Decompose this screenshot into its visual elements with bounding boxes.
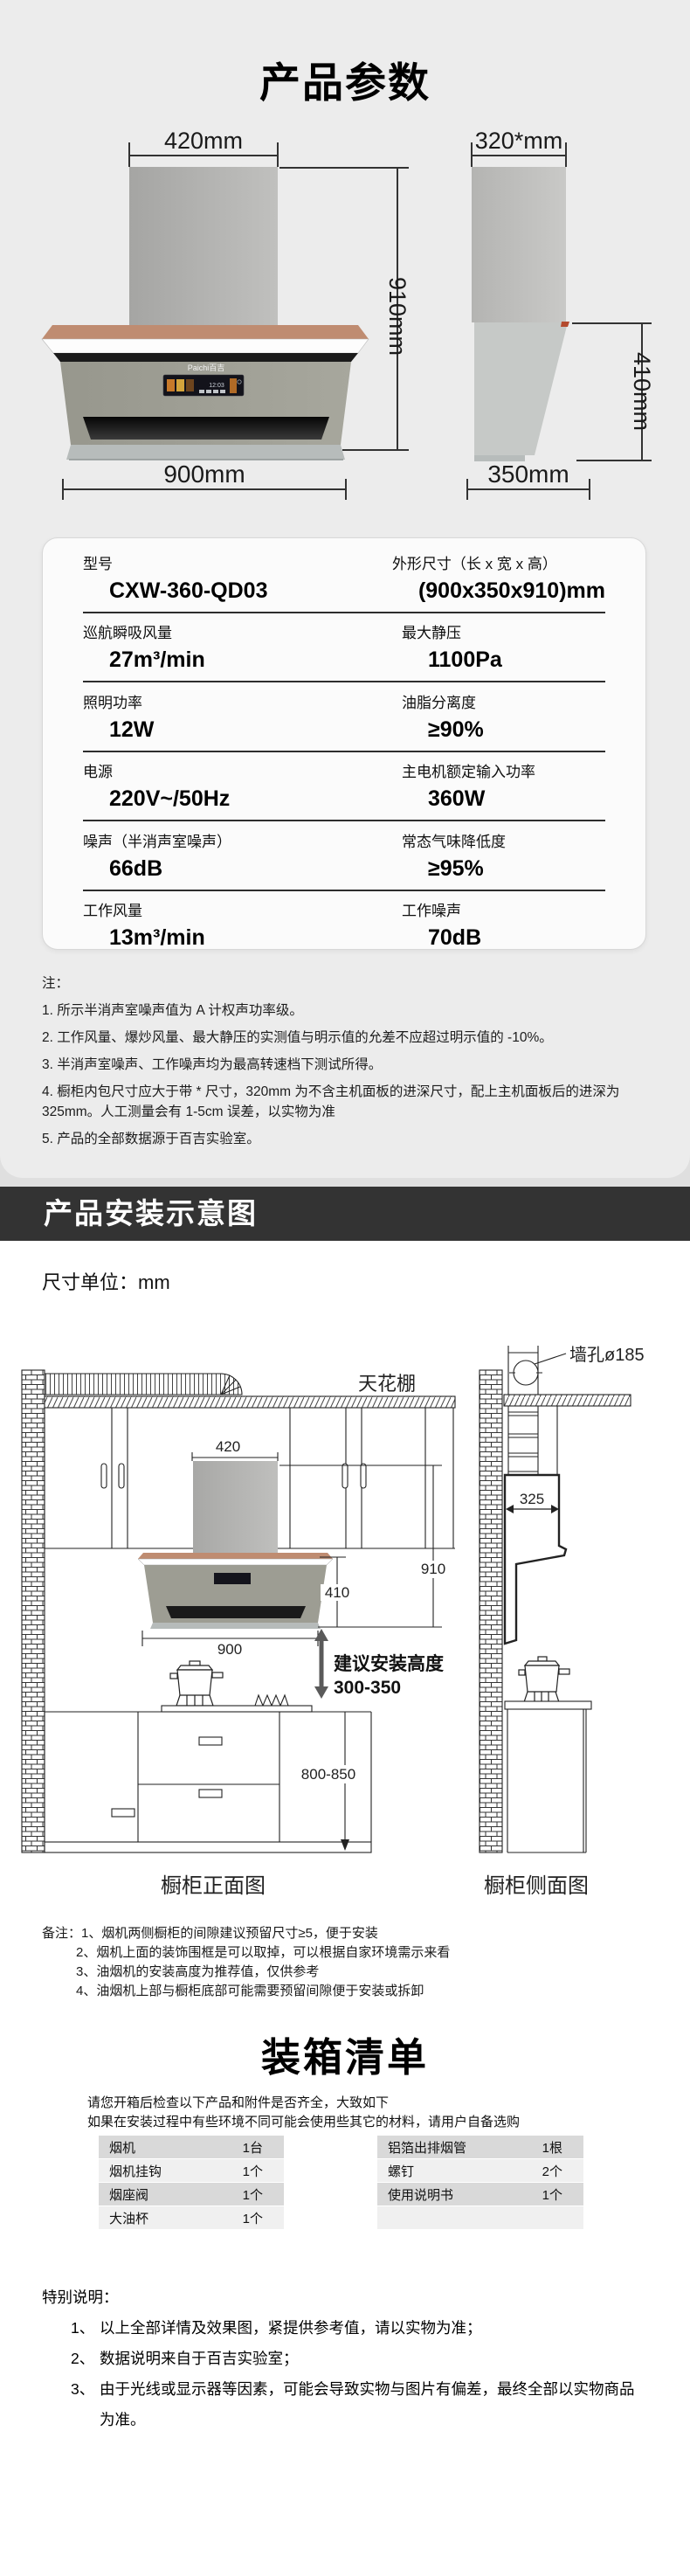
pot-front xyxy=(170,1661,223,1706)
cooktop-slab xyxy=(162,1706,312,1712)
spec-label: 常态气味降低度 xyxy=(402,829,605,851)
hood-intake-slot xyxy=(83,417,329,440)
unit-note: 尺寸单位：mm xyxy=(42,1267,170,1295)
spec-value: 12W xyxy=(83,717,402,743)
brick-wall-left xyxy=(22,1370,45,1852)
dim-front-top-width: 420mm xyxy=(164,128,243,154)
item-qty: 1根 xyxy=(542,2138,562,2157)
dim-800-arrow xyxy=(341,1839,349,1851)
packing-intro-line: 如果在安装过程中有些环境不同可能会使用些其它的材料，请用户自备选购 xyxy=(87,2113,520,2132)
suggest-arrow-down xyxy=(314,1686,328,1699)
spec-row: 噪声（半消声室噪声） 66dB 常态气味降低度 ≥95% xyxy=(83,821,605,891)
special-item-text: 由于光线或显示器等因素，可能会导致实物与图片有偏差，最终全部以实物商品为准。 xyxy=(100,2374,643,2435)
spec-label: 工作噪声 xyxy=(402,898,605,920)
hood-slot-small xyxy=(166,1606,306,1618)
spec-value: 220V~/50Hz xyxy=(83,786,402,812)
drawer-handles xyxy=(112,1737,222,1817)
special-item: 1、 以上全部详情及效果图，紧提供参考值，请以实物为准； xyxy=(42,2313,662,2344)
suggest-text-2: 300-350 xyxy=(334,1678,401,1698)
dim-410-label: 410 xyxy=(325,1584,349,1601)
item-name: 大油杯 xyxy=(109,2209,148,2227)
spec-value: 66dB xyxy=(83,856,402,882)
brick-wall-side xyxy=(480,1370,502,1852)
ceiling-band xyxy=(45,1396,455,1408)
display-food-tile xyxy=(167,379,175,391)
remark-line: 备注：1、烟机两侧橱柜的间隙建议预留尺寸≥5，便于安装 xyxy=(42,1927,653,1940)
page-title: 产品参数 xyxy=(0,49,690,109)
burner-grate-right xyxy=(255,1695,288,1706)
special-notes: 特别说明： 1、 以上全部详情及效果图，紧提供参考值，请以实物为准； 2、 数据… xyxy=(42,2282,662,2435)
spec-label: 电源 xyxy=(83,759,402,781)
packing-row: 烟机 1台 xyxy=(99,2136,284,2158)
side-chimney xyxy=(472,167,566,322)
spec-value: 27m³/min xyxy=(83,647,402,673)
dim-front-bottom-width: 900mm xyxy=(163,460,245,488)
special-item-num: 2、 xyxy=(71,2344,100,2374)
hood-led-strip xyxy=(42,339,369,353)
spec-value: 13m³/min xyxy=(83,925,402,951)
install-front-view: 420 910 410 900 建议安装高度 300-350 xyxy=(22,1370,455,1898)
wall-hole-label: 墙孔ø185 xyxy=(569,1345,645,1365)
product-dimensions-figure: 420mm 910mm Paichi百吉 12:03 900mm 320*mm xyxy=(0,122,690,537)
remark-line: 2、烟机上面的装饰围框是可以取掉，可以根据自家环境需示来看 xyxy=(42,1946,653,1959)
packing-table-left: 烟机 1台 烟机挂钩 1个 烟座阀 1个 大油杯 1个 xyxy=(99,2136,284,2230)
packing-row: 烟机挂钩 1个 xyxy=(99,2159,284,2182)
packing-row: 烟座阀 1个 xyxy=(99,2183,284,2206)
spec-value: ≥90% xyxy=(402,717,605,743)
ceiling-label: 天花棚 xyxy=(358,1373,416,1395)
spec-label: 照明功率 xyxy=(83,690,402,712)
top-duct xyxy=(45,1374,242,1395)
hood-base xyxy=(66,445,345,460)
item-qty: 2个 xyxy=(542,2162,562,2180)
spec-value: 1100Pa xyxy=(402,647,605,673)
display-time: 12:03 xyxy=(209,383,224,389)
spec-row: 电源 220V~/50Hz 主电机额定输入功率 360W xyxy=(83,752,605,822)
wall-hole xyxy=(514,1361,538,1385)
hood-lens-band xyxy=(53,353,358,362)
installation-diagram-main: 420 910 410 900 建议安装高度 300-350 xyxy=(0,1328,690,1909)
spec-value: 360W xyxy=(402,786,605,812)
dim-front-height: 910mm xyxy=(384,277,411,356)
note-item: 1. 所示半消声室噪声值为 A 计权声功率级。 xyxy=(42,1001,632,1021)
special-item: 3、 由于光线或显示器等因素，可能会导致实物与图片有偏差，最终全部以实物商品为准… xyxy=(42,2374,662,2435)
packing-list-title: 装箱清单 xyxy=(0,2025,690,2082)
special-item-text: 数据说明来自于百吉实验室； xyxy=(100,2344,643,2374)
item-qty: 1个 xyxy=(542,2185,562,2204)
remark-line: 4、油烟机上部与橱柜底部可能需要预留间隙便于安装或拆卸 xyxy=(42,1984,653,1998)
spec-row: 巡航瞬吸风量 27m³/min 最大静压 1100Pa xyxy=(83,613,605,683)
suggest-text-1: 建议安装高度 xyxy=(334,1653,444,1674)
side-view-caption: 橱柜侧面图 xyxy=(484,1874,589,1898)
remark-line: 3、油烟机的安装高度为推荐值，仅供参考 xyxy=(42,1965,653,1978)
wall-hole-leader xyxy=(535,1354,566,1364)
install-remarks: 备注：1、烟机两侧橱柜的间隙建议预留尺寸≥5，便于安装 2、烟机上面的装饰围框是… xyxy=(42,1927,653,2004)
install-side-view: 墙孔ø185 325 橱柜侧面图 xyxy=(480,1345,645,1898)
dim-side-depth: 350mm xyxy=(487,460,569,488)
spec-notes: 注： 1. 所示半消声室噪声值为 A 计权声功率级。 2. 工作风量、爆炒风量、… xyxy=(42,973,632,1156)
dim-420-label: 420 xyxy=(216,1438,240,1455)
dim-side-height: 410mm xyxy=(629,352,655,431)
hood-copper-small xyxy=(138,1553,333,1559)
display-food-tile xyxy=(186,379,194,391)
hood-base-small xyxy=(150,1623,321,1629)
item-name: 铝箔出排烟管 xyxy=(388,2138,466,2157)
note-item: 3. 半消声室噪声、工作噪声均为最高转速档下测试所得。 xyxy=(42,1055,632,1075)
dim-900-label: 900 xyxy=(217,1641,242,1658)
special-item-num: 1、 xyxy=(71,2313,100,2344)
special-item-text: 以上全部详情及效果图，紧提供参考值，请以实物为准； xyxy=(100,2313,643,2344)
item-name: 烟机 xyxy=(109,2138,135,2157)
spec-value: CXW-360-QD03 xyxy=(83,578,392,604)
spec-label: 外形尺寸（长 x 宽 x 高） xyxy=(392,551,605,573)
special-item-num: 3、 xyxy=(71,2374,100,2435)
hood-copper-top xyxy=(42,325,369,339)
packing-row: 使用说明书 1个 xyxy=(377,2183,583,2206)
spec-label: 工作风量 xyxy=(83,898,402,920)
pot-side xyxy=(519,1657,569,1702)
packing-row: 螺钉 2个 xyxy=(377,2159,583,2182)
dim-side-top-width: 320*mm xyxy=(475,128,563,154)
packing-row: 大油杯 1个 xyxy=(99,2206,284,2229)
display-food-tile xyxy=(176,379,184,391)
spec-label: 噪声（半消声室噪声） xyxy=(83,829,402,851)
note-item: 4. 橱柜内包尺寸应大于带 * 尺寸，320mm 为不含主机面板的进深尺寸，配上… xyxy=(42,1082,632,1122)
item-name: 烟座阀 xyxy=(109,2185,148,2204)
front-chimney xyxy=(129,167,278,326)
special-item: 2、 数据说明来自于百吉实验室； xyxy=(42,2344,662,2374)
spec-value: ≥95% xyxy=(402,856,605,882)
hood-display-small xyxy=(214,1573,251,1584)
item-qty: 1个 xyxy=(243,2162,263,2180)
side-copper-accent xyxy=(561,322,569,327)
note-item: 5. 产品的全部数据源于百吉实验室。 xyxy=(42,1129,632,1149)
spec-row: 照明功率 12W 油脂分离度 ≥90% xyxy=(83,682,605,752)
item-qty: 1个 xyxy=(243,2185,263,2204)
side-hood-profile xyxy=(474,322,568,455)
item-qty: 1台 xyxy=(243,2138,263,2157)
special-heading: 特别说明： xyxy=(42,2282,662,2313)
dim-910-label: 910 xyxy=(421,1561,445,1577)
side-view: 320*mm 410mm 350mm xyxy=(467,128,655,500)
spec-value: (900x350x910)mm xyxy=(392,578,605,604)
dim-800-label: 800-850 xyxy=(301,1766,355,1783)
packing-table-right: 铝箔出排烟管 1根 螺钉 2个 使用说明书 1个 xyxy=(377,2136,583,2230)
hood-chimney-small xyxy=(193,1461,278,1553)
spec-table: 型号 CXW-360-QD03 外形尺寸（长 x 宽 x 高） (900x350… xyxy=(42,537,646,950)
packing-intro: 请您开箱后检查以下产品和附件是否齐全，大致如下 如果在安装过程中有些环境不同可能… xyxy=(87,2094,520,2131)
brand-logo: Paichi百吉 xyxy=(188,364,225,372)
dim-325-label: 325 xyxy=(520,1491,544,1507)
front-view: 420mm 910mm Paichi百吉 12:03 900mm xyxy=(42,128,411,500)
spec-row: 型号 CXW-360-QD03 外形尺寸（长 x 宽 x 高） (900x350… xyxy=(83,544,605,613)
ceiling-band-side xyxy=(504,1395,631,1406)
item-name: 螺钉 xyxy=(388,2162,414,2180)
suggest-arrow-up xyxy=(314,1629,328,1641)
spec-value: 70dB xyxy=(402,925,605,951)
spec-label: 最大静压 xyxy=(402,620,605,642)
packing-row: 铝箔出排烟管 1根 xyxy=(377,2136,583,2158)
packing-row xyxy=(377,2206,583,2229)
item-name: 烟机挂钩 xyxy=(109,2162,162,2180)
note-item: 2. 工作风量、爆炒风量、最大静压的实测值与明示值的允差不应超过明示值的 -10… xyxy=(42,1028,632,1048)
hood-led-small xyxy=(138,1559,333,1565)
toe-kick xyxy=(45,1842,371,1852)
cooktop-slab-side xyxy=(505,1701,591,1709)
item-name: 使用说明书 xyxy=(388,2185,453,2204)
spec-label: 油脂分离度 xyxy=(402,690,605,712)
display-flame-tile xyxy=(230,378,237,393)
spec-label: 巡航瞬吸风量 xyxy=(83,620,402,642)
install-section-banner: 产品安装示意图 xyxy=(0,1187,690,1241)
base-cabinet-side xyxy=(507,1709,586,1852)
spec-label: 主电机额定输入功率 xyxy=(402,759,605,781)
front-view-caption: 橱柜正面图 xyxy=(161,1874,266,1898)
spec-label: 型号 xyxy=(83,551,392,573)
notes-heading: 注： xyxy=(42,973,632,994)
spec-row: 工作风量 13m³/min 工作噪声 70dB xyxy=(83,891,605,959)
item-qty: 1个 xyxy=(243,2209,263,2227)
packing-intro-line: 请您开箱后检查以下产品和附件是否齐全，大致如下 xyxy=(87,2094,520,2113)
